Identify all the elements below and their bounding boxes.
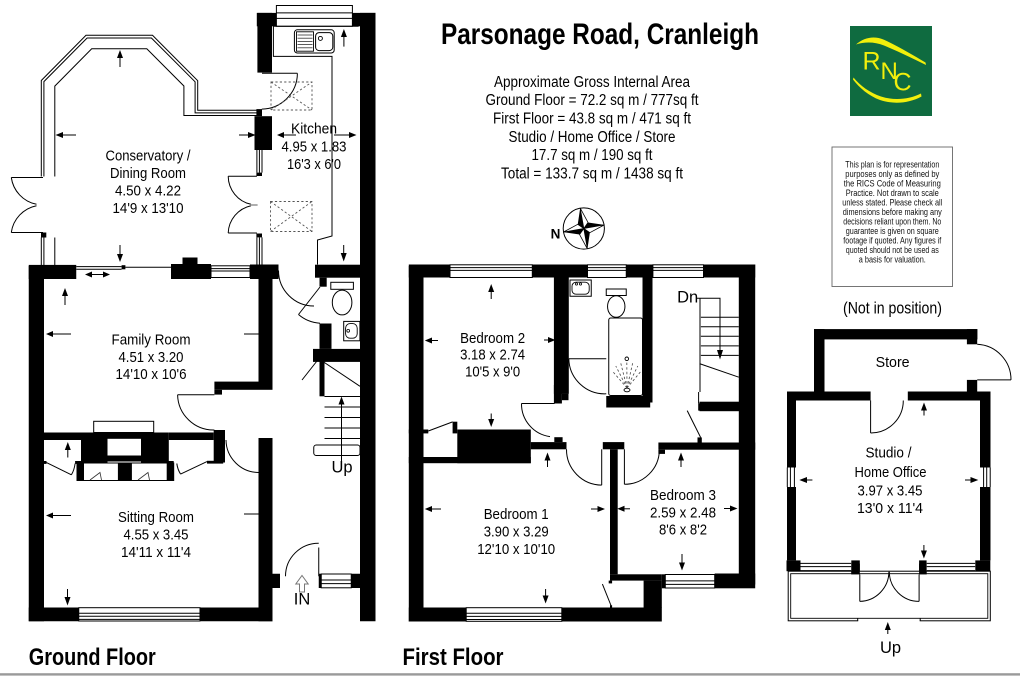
svg-text:(Not in position): (Not in position) <box>843 300 942 318</box>
svg-text:14'10 x 10'6: 14'10 x 10'6 <box>116 366 187 383</box>
svg-text:This plan is for representatio: This plan is for representation <box>845 160 939 170</box>
svg-text:Total = 133.7 sq m / 1438 sq f: Total = 133.7 sq m / 1438 sq ft <box>501 166 684 183</box>
svg-text:14'9 x 13'10: 14'9 x 13'10 <box>113 200 184 217</box>
svg-text:decisions reliant upon them. N: decisions reliant upon them. No <box>843 217 941 227</box>
svg-text:14'11 x 11'4: 14'11 x 11'4 <box>121 544 191 561</box>
svg-text:Parsonage Road, Cranleigh: Parsonage Road, Cranleigh <box>441 18 759 51</box>
svg-text:17.7 sq m / 190 sq ft: 17.7 sq m / 190 sq ft <box>532 147 654 164</box>
svg-text:Bedroom 1: Bedroom 1 <box>484 506 549 523</box>
svg-text:3.90 x 3.29: 3.90 x 3.29 <box>484 523 549 540</box>
svg-text:12'10 x 10'10: 12'10 x 10'10 <box>477 541 555 558</box>
svg-text:3.18 x 2.74: 3.18 x 2.74 <box>460 346 525 363</box>
svg-text:13'0 x 11'4: 13'0 x 11'4 <box>857 500 923 517</box>
svg-text:IN: IN <box>294 591 311 609</box>
svg-text:N: N <box>551 227 561 242</box>
svg-text:Approximate Gross Internal Are: Approximate Gross Internal Area <box>494 74 690 91</box>
svg-text:the RICS Code of Measuring: the RICS Code of Measuring <box>844 179 941 189</box>
svg-text:4.95 x 1.83: 4.95 x 1.83 <box>282 138 347 155</box>
svg-text:guarantee is given on square: guarantee is given on square <box>846 226 939 236</box>
svg-text:Family Room: Family Room <box>112 331 191 348</box>
svg-text:purposes only as defined by: purposes only as defined by <box>845 169 939 179</box>
svg-text:Conservatory /: Conservatory / <box>106 147 192 164</box>
svg-text:Store: Store <box>876 354 910 371</box>
svg-text:Practice. Not drawn to scale: Practice. Not drawn to scale <box>846 188 939 198</box>
svg-text:4.51 x 3.20: 4.51 x 3.20 <box>119 349 184 366</box>
svg-text:Dn: Dn <box>677 288 698 306</box>
svg-text:4.50 x 4.22: 4.50 x 4.22 <box>115 182 181 199</box>
svg-text:Ground Floor = 72.2 sq m / 777: Ground Floor = 72.2 sq m / 777sq ft <box>486 92 700 109</box>
svg-text:16'3 x 6'0: 16'3 x 6'0 <box>287 156 341 173</box>
svg-text:First Floor: First Floor <box>403 644 504 671</box>
svg-text:Sitting Room: Sitting Room <box>118 509 194 526</box>
svg-text:quoted should not be used as: quoted should not be used as <box>846 245 939 255</box>
svg-text:unless stated. Please check al: unless stated. Please check all <box>842 198 942 208</box>
svg-text:First Floor = 43.8 sq m / 471: First Floor = 43.8 sq m / 471 sq ft <box>493 111 692 128</box>
svg-text:2.59 x 2.48: 2.59 x 2.48 <box>650 504 716 521</box>
svg-text:dimensions before making any: dimensions before making any <box>843 207 942 217</box>
svg-text:Ground Floor: Ground Floor <box>29 644 156 671</box>
svg-text:10'5 x 9'0: 10'5 x 9'0 <box>465 363 520 380</box>
svg-text:R: R <box>863 48 881 76</box>
svg-text:Bedroom 3: Bedroom 3 <box>650 487 716 504</box>
svg-text:Studio /: Studio / <box>866 444 913 461</box>
svg-text:3.97 x 3.45: 3.97 x 3.45 <box>858 482 923 499</box>
svg-text:Home Office: Home Office <box>855 464 927 481</box>
svg-text:C: C <box>894 69 912 97</box>
svg-text:Bedroom 2: Bedroom 2 <box>460 330 525 347</box>
svg-text:Up: Up <box>880 639 901 657</box>
svg-text:Studio / Home Office / Store: Studio / Home Office / Store <box>509 129 676 146</box>
svg-text:Up: Up <box>331 459 352 477</box>
svg-text:footage if quoted. Any figures: footage if quoted. Any figures if <box>843 236 941 246</box>
svg-text:Kitchen: Kitchen <box>291 120 337 137</box>
svg-text:a basis for valuation.: a basis for valuation. <box>859 255 926 265</box>
svg-text:4.55 x 3.45: 4.55 x 3.45 <box>124 526 189 543</box>
svg-text:Dining Room: Dining Room <box>110 165 186 182</box>
svg-text:8'6 x 8'2: 8'6 x 8'2 <box>659 521 707 538</box>
